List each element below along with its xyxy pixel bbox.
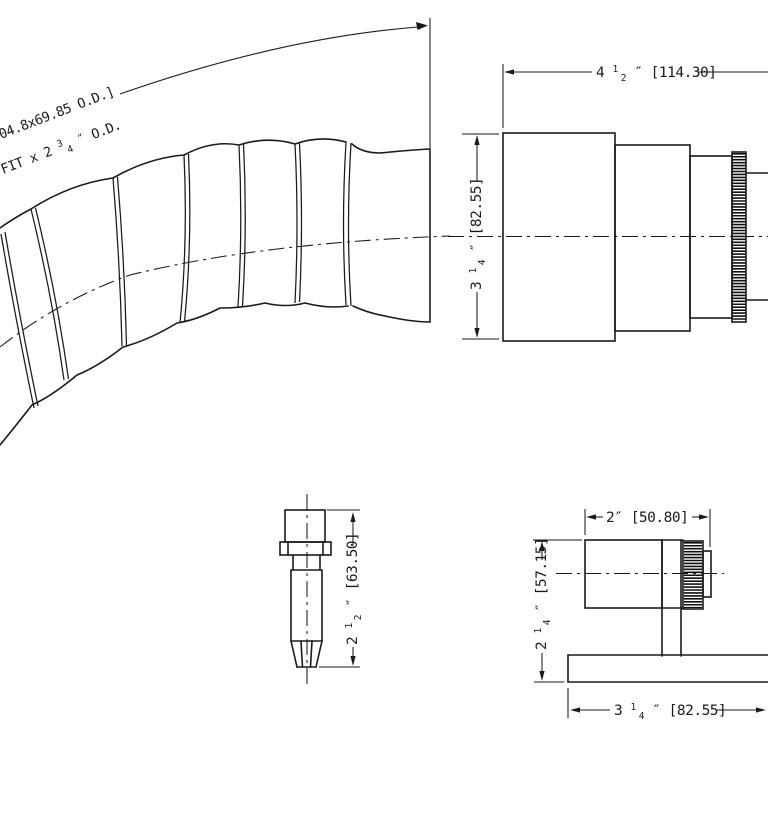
arrowhead [350,656,355,666]
dim-base-width-label: 3 1 4 ″ [82.55] [614,698,726,723]
fitting-body-mid [615,145,690,331]
dim-fitting-width: 4 1 2 ″ [114.30] [503,60,768,128]
hose-view: 04.8x69.85 O.D.] FIT x 2 3 4 ″ O.D. [0,18,450,445]
dim-fitting-height-label: 3 1 4 ″ [82.55] [464,178,489,290]
nozzle-view: 2 1 2 ″ [63.50] [280,494,365,686]
drawing-sheet: 04.8x69.85 O.D.] FIT x 2 3 4 ″ O.D. 4 [0,0,768,813]
arrowhead [570,707,580,712]
nozzle-taper-right [316,641,322,667]
dim-fitting-height: 3 1 4 ″ [82.55] [462,134,499,339]
hose-centerline [0,236,450,347]
arrowhead [699,514,709,519]
arrowhead [474,135,479,145]
arrowhead [474,328,479,338]
dim-nozzle-height-label: 2 1 2 ″ [63.50] [340,533,365,645]
dim-mount-height-label: 2 1 4 ″ [57.15] [529,538,554,650]
nozzle-taper-inner [311,641,313,667]
hose-cuff-top [352,144,430,153]
note-leader-arc [120,27,418,94]
nozzle-taper-inner [301,641,303,667]
nozzle-cap [285,510,325,542]
dim-fitting-width-label: 4 1 2 ″ [114.30] [596,60,717,85]
hose-lower-contour [0,303,348,445]
hose-note: 04.8x69.85 O.D.] FIT x 2 3 4 ″ O.D. [0,84,125,181]
arrowhead [504,69,514,74]
engineering-drawing: 04.8x69.85 O.D.] FIT x 2 3 4 ″ O.D. 4 [0,0,768,813]
mounted-fitting-view: 2″ [50.80] 2 1 4 ″ [57.15] 3 [529,509,768,723]
leader-arrowhead [416,22,428,30]
arrowhead [586,514,596,519]
arrowhead [539,671,544,681]
nozzle-taper-left [291,641,297,667]
dim-nozzle-height: 2 1 2 ″ [63.50] [319,510,365,667]
dim-base-width: 3 1 4 ″ [82.55] [568,688,766,723]
hose-ribs [1,142,351,408]
arrowhead [350,512,355,522]
dim-mount-width-label: 2″ [50.80] [606,510,688,526]
hose-cuff-bottom [353,306,430,322]
dim-mount-height: 2 1 4 ″ [57.15] [529,538,582,682]
arrowhead [756,707,766,712]
fitting-side-view: 4 1 2 ″ [114.30] 3 1 4 ″ [82.55] [448,60,768,341]
